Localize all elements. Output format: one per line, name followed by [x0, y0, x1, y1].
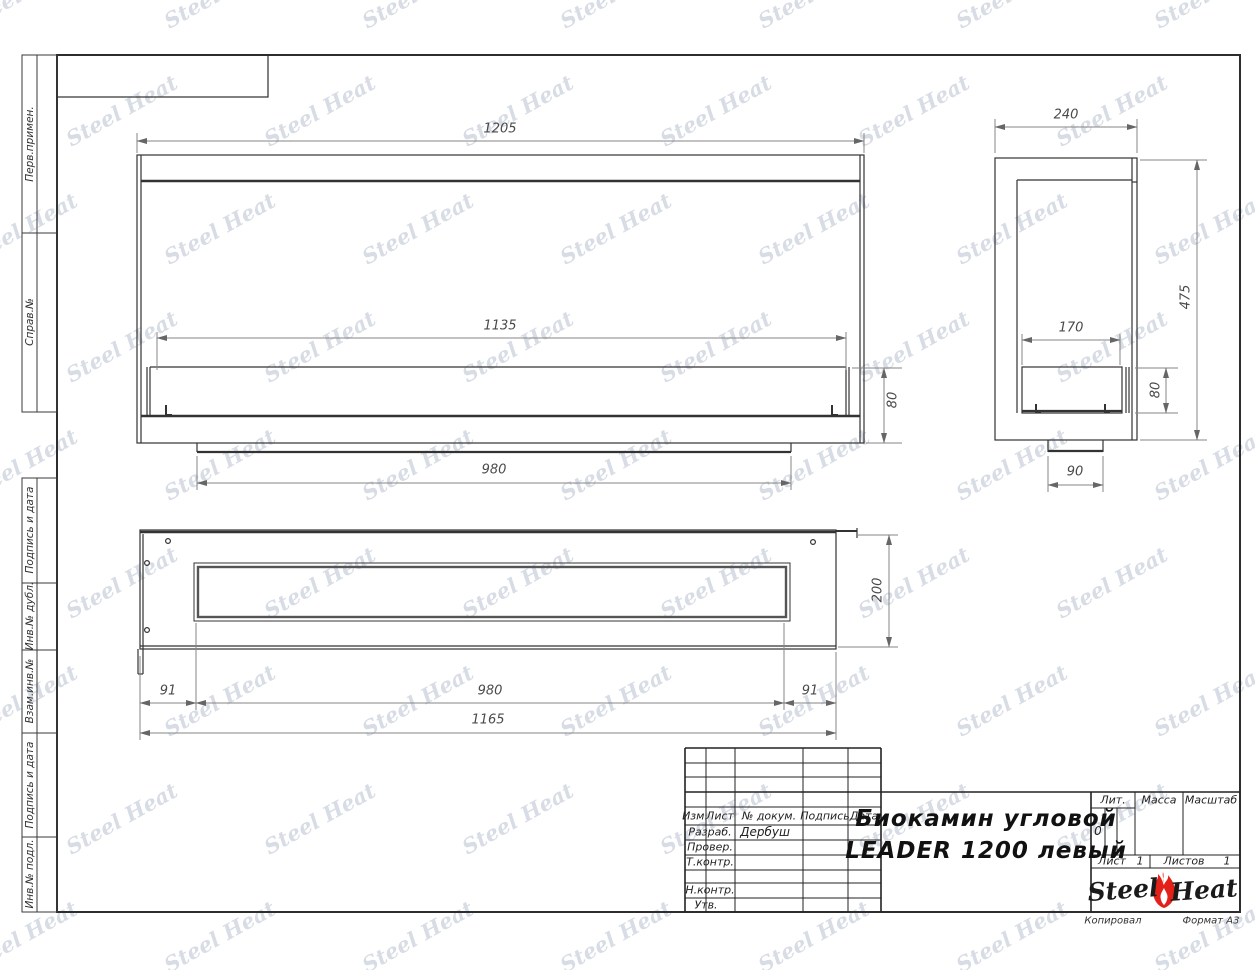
dim-top-opening-width: 980 [478, 684, 503, 699]
titleblock-razrab-name: Дербуш [740, 825, 790, 839]
titleblock-row-razrab: Разраб. [688, 826, 731, 839]
dim-side-total-height: 475 [1179, 285, 1194, 310]
top-view [138, 528, 898, 740]
side-view [995, 119, 1207, 492]
logo-heat-text: Heat [1169, 873, 1238, 907]
titleblock-row-prover: Провер. [687, 841, 733, 854]
titleblock-sheets-total: 1 [1224, 855, 1231, 868]
titleblock-header-doc: № докум. [742, 810, 796, 823]
dim-top-depth: 200 [871, 578, 886, 603]
dim-front-total-width: 1205 [483, 122, 516, 137]
margin-label-podpis-data: Подпись и дата [24, 487, 36, 574]
dim-front-burner-height: 80 [886, 392, 901, 409]
dim-side-flange-depth: 90 [1067, 465, 1084, 480]
titleblock-row-tkontr: Т.контр. [686, 856, 734, 869]
dim-side-total-depth: 240 [1054, 108, 1079, 123]
dim-top-right-margin: 91 [802, 684, 819, 699]
titleblock-sheet-label: Лист [1098, 855, 1126, 868]
dim-side-inner-depth: 170 [1059, 321, 1084, 336]
dim-front-flange-width: 980 [482, 463, 507, 478]
dim-front-inner-width: 1135 [483, 319, 516, 334]
footer-format-label: Формат А3 [1183, 916, 1240, 927]
titleblock-row-nkontr: Н.контр. [685, 884, 734, 897]
titleblock-lit-label: Лит. [1100, 794, 1125, 807]
footer-copied-label: Копировал [1084, 916, 1141, 927]
side-view-dimensions [995, 119, 1207, 492]
drawing-sheet: Steel HeatSteel HeatSteel HeatSteel Heat… [0, 0, 1255, 970]
titleblock-scale-label: Масштаб [1185, 794, 1237, 807]
margin-label-inv-dubl: Инв.№ дубл. [24, 582, 36, 651]
logo-steel-text: Steel [1087, 873, 1160, 907]
dim-side-burner-height: 80 [1149, 382, 1164, 399]
dim-top-left-margin: 91 [160, 684, 177, 699]
titleblock-row-utv: Утв. [694, 899, 717, 912]
front-view [137, 133, 902, 490]
dim-top-total-width: 1165 [471, 713, 504, 728]
top-view-dimensions [140, 535, 898, 740]
margin-label-inv-podl: Инв.№ подл. [24, 839, 36, 908]
front-view-dimensions [137, 133, 902, 490]
titleblock-sheets-label: Листов [1163, 855, 1204, 868]
titleblock-header-sign: Подпись [800, 810, 849, 823]
titleblock-header-list: Лист [706, 810, 734, 823]
titleblock-sheet-number: 1 [1137, 855, 1144, 868]
titleblock-header-izm: Изм. [682, 810, 708, 823]
margin-label-vzam-inv: Взам.инв.№ [24, 659, 36, 724]
titleblock-mass-label: Масса [1141, 794, 1176, 807]
document-title-line1: Биокамин угловой [855, 806, 1117, 832]
margin-label-perv-primen: Перв.примен. [24, 106, 36, 181]
margin-label-sprav-no: Справ.№ [24, 298, 36, 346]
document-title-line2: LEADER 1200 левый [845, 838, 1127, 864]
titleblock-lit-value: 0 [1094, 824, 1102, 838]
margin-label-podpis-data2: Подпись и дата [24, 742, 36, 829]
